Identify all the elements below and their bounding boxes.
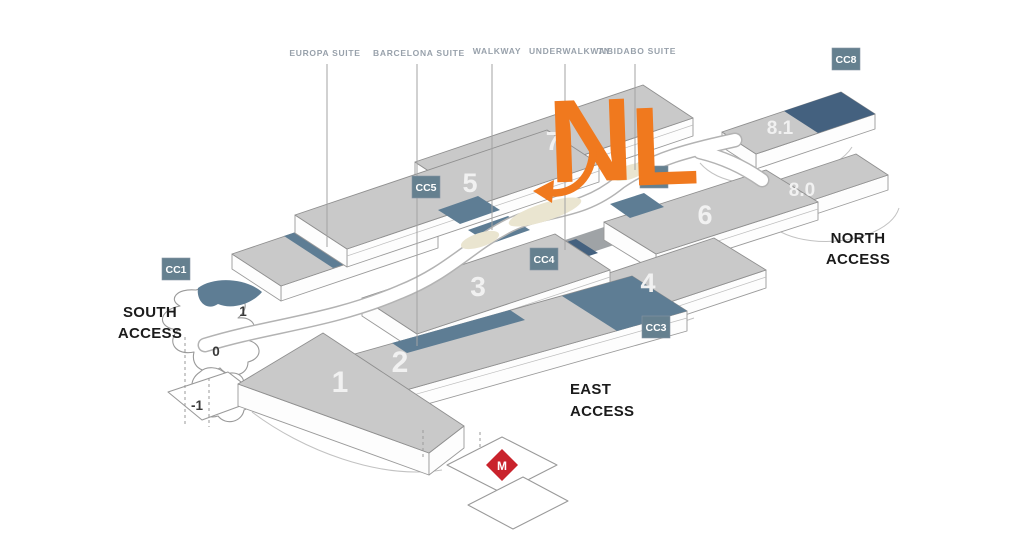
nl-logo-letter-l: L	[628, 82, 701, 209]
badge-cc4: CC4	[530, 248, 558, 270]
badge-cc1-label: CC1	[165, 264, 186, 276]
hall-4-label: 4	[640, 268, 655, 298]
north-access-label-line1: NORTH	[831, 230, 886, 247]
hall-3-label: 3	[470, 271, 486, 302]
badge-cc8: CC8	[832, 48, 860, 70]
level-minus1-label: -1	[191, 398, 203, 413]
venue-map-canvas: M EUROPA SUITE BARCELONA SUITE WALKWAY U…	[0, 0, 1024, 543]
south-access-label-line1: SOUTH	[123, 304, 177, 321]
barcelona-suite-label: BARCELONA SUITE	[373, 48, 465, 58]
hall-5-label: 5	[462, 168, 477, 198]
tibidabo-suite-label: TIBIDABO SUITE	[598, 46, 676, 56]
hall-8-1-label: 8.1	[767, 118, 794, 139]
south-access-label-line2: ACCESS	[118, 325, 182, 342]
level-1-label: 1	[239, 304, 247, 319]
hall-2-label: 2	[392, 346, 409, 379]
badge-cc4-label: CC4	[533, 254, 554, 266]
north-access-label-line2: ACCESS	[826, 251, 890, 268]
metro-icon-label: M	[497, 459, 507, 473]
east-access-label-line2: ACCESS	[570, 403, 634, 420]
badge-cc1: CC1	[162, 258, 190, 280]
badge-cc8-label: CC8	[835, 54, 856, 66]
south-canopy	[198, 280, 262, 306]
hall-1-label: 1	[332, 366, 349, 399]
east-access-label-line1: EAST	[570, 381, 611, 398]
venue-map: M EUROPA SUITE BARCELONA SUITE WALKWAY U…	[0, 0, 1024, 543]
badge-cc5: CC5	[412, 176, 440, 198]
badge-cc5-label: CC5	[415, 182, 436, 194]
badge-cc3-label: CC3	[645, 322, 666, 334]
badge-cc3: CC3	[642, 316, 670, 338]
hall-8-0-label: 8.0	[789, 180, 815, 201]
level-0-label: 0	[212, 344, 220, 359]
europa-suite-label: EUROPA SUITE	[289, 48, 360, 58]
nl-logo-letter-n: N	[546, 74, 636, 209]
walkway-label: WALKWAY	[473, 46, 522, 56]
